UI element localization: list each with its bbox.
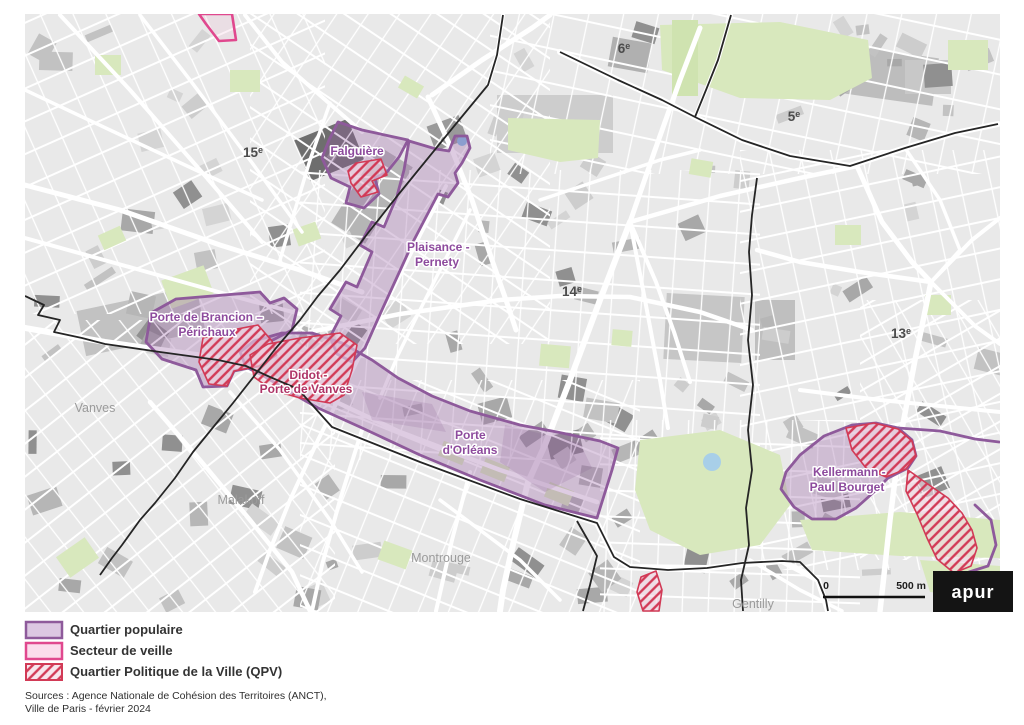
label-commune-malakoff: Malakoff — [217, 493, 265, 507]
sources-line-2: Ville de Paris - février 2024 — [25, 703, 151, 715]
legend-swatch-quartier-populaire — [26, 622, 62, 638]
montsouris-pond — [703, 453, 721, 471]
label-commune-gentilly: Gentilly — [732, 597, 774, 611]
legend-item-quartier-populaire: Quartier populaire — [26, 622, 183, 638]
apur-logo-text: apur — [951, 582, 994, 602]
legend-label-qpv: Quartier Politique de la Ville (QPV) — [70, 664, 282, 679]
quarter-label-kellermann-paul-bourget: Kellermann - Paul Bourget — [810, 465, 889, 494]
legend-swatch-secteur-de-veille — [26, 643, 62, 659]
sources-line-1: Sources : Agence Nationale de Cohésion d… — [25, 690, 327, 702]
map-canvas: Falguière Plaisance - Pernety Porte de B… — [25, 14, 1007, 613]
paris-qpv-map: Falguière Plaisance - Pernety Porte de B… — [0, 0, 1024, 725]
scale-zero-label: 0 — [823, 580, 829, 592]
legend-label-quartier-populaire: Quartier populaire — [70, 622, 183, 637]
scale-max-label: 500 m — [896, 580, 926, 592]
apur-logo: apur — [933, 571, 1013, 612]
qpv-gentilly — [637, 571, 662, 611]
legend-label-secteur-de-veille: Secteur de veille — [70, 643, 173, 658]
legend-item-secteur-de-veille: Secteur de veille — [26, 643, 173, 659]
map-page: Falguière Plaisance - Pernety Porte de B… — [0, 0, 1024, 725]
quarter-label-falguiere: Falguière — [330, 144, 384, 158]
label-commune-vanves: Vanves — [75, 401, 116, 415]
label-commune-montrouge: Montrouge — [411, 551, 471, 565]
legend-swatch-qpv — [26, 664, 62, 680]
